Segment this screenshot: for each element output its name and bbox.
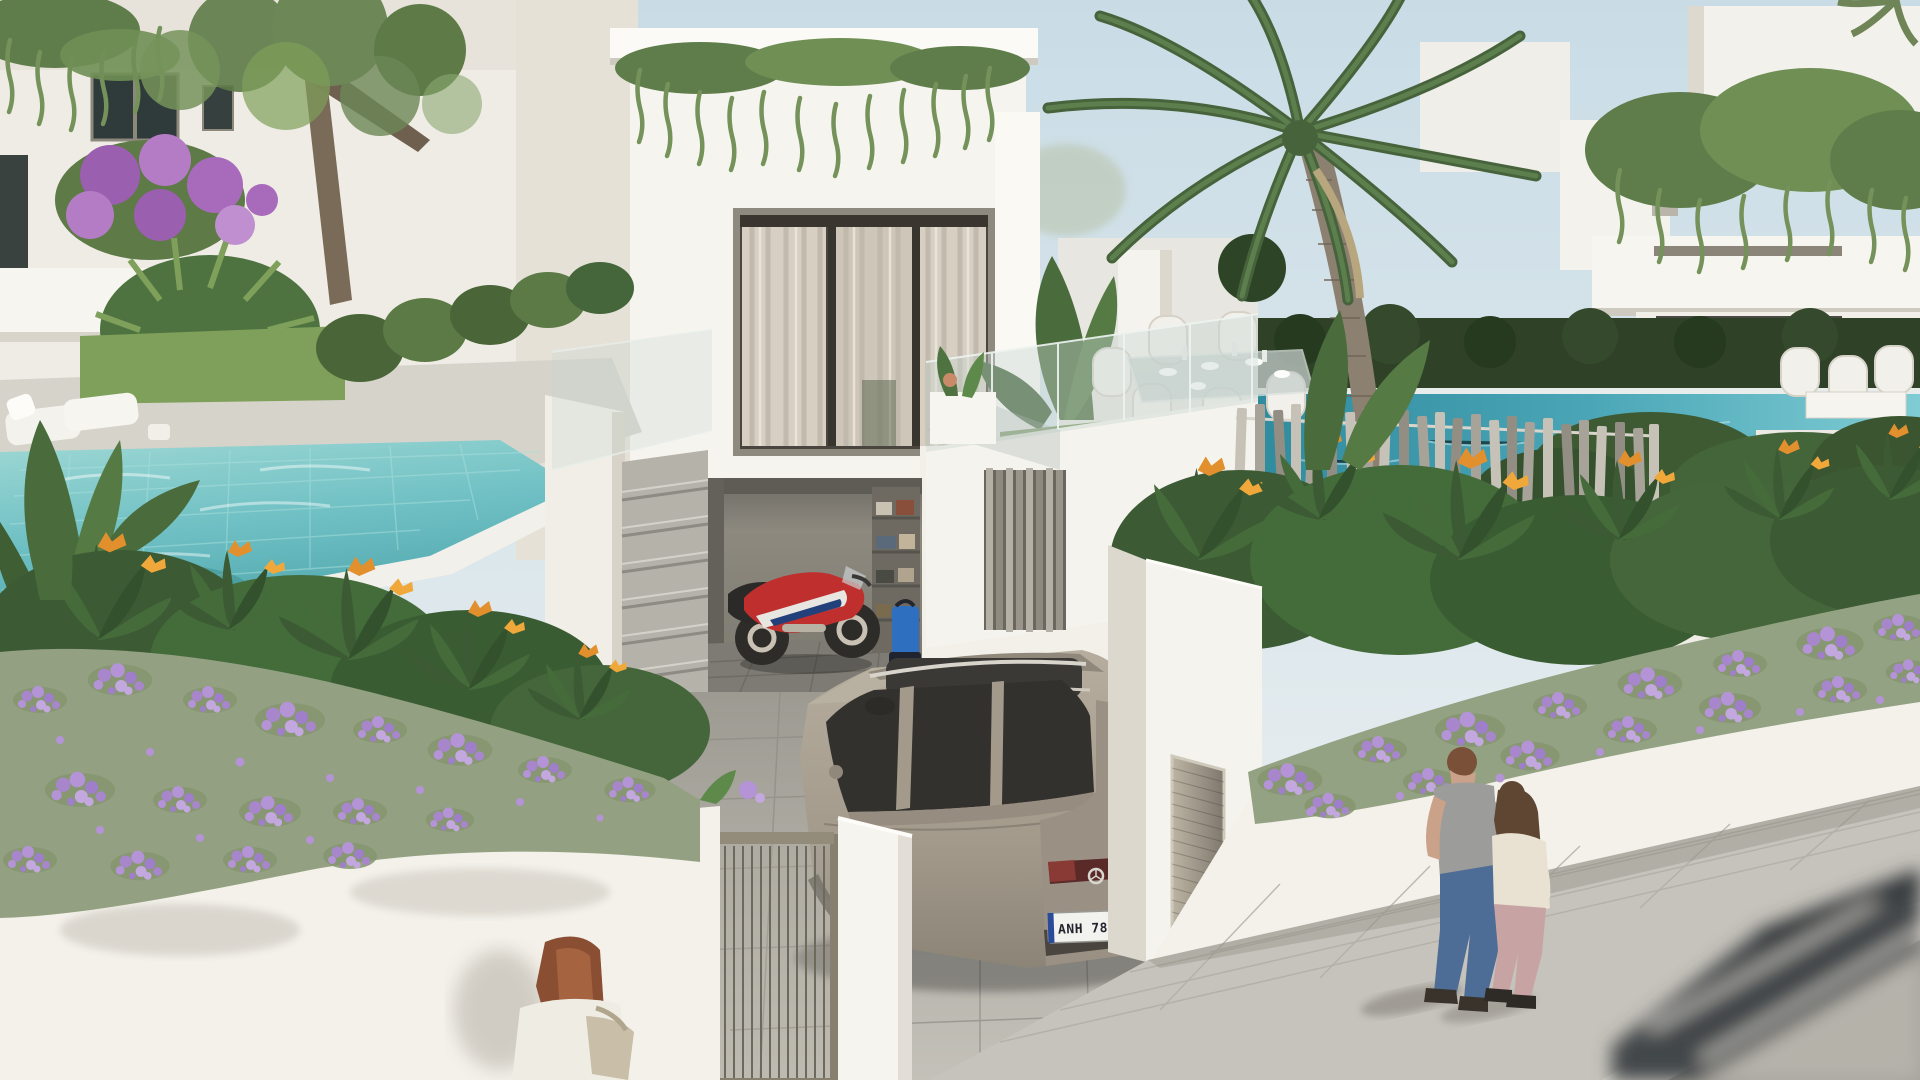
garage — [698, 478, 922, 692]
side-windows — [826, 680, 1094, 812]
terrace-slat-screen — [984, 468, 1066, 632]
render-scene: ANH 7852 — [0, 0, 1920, 1080]
gate-pillar — [838, 818, 912, 1080]
side-mirror — [865, 697, 895, 715]
villa-render: ANH 7852 — [0, 0, 1920, 1080]
